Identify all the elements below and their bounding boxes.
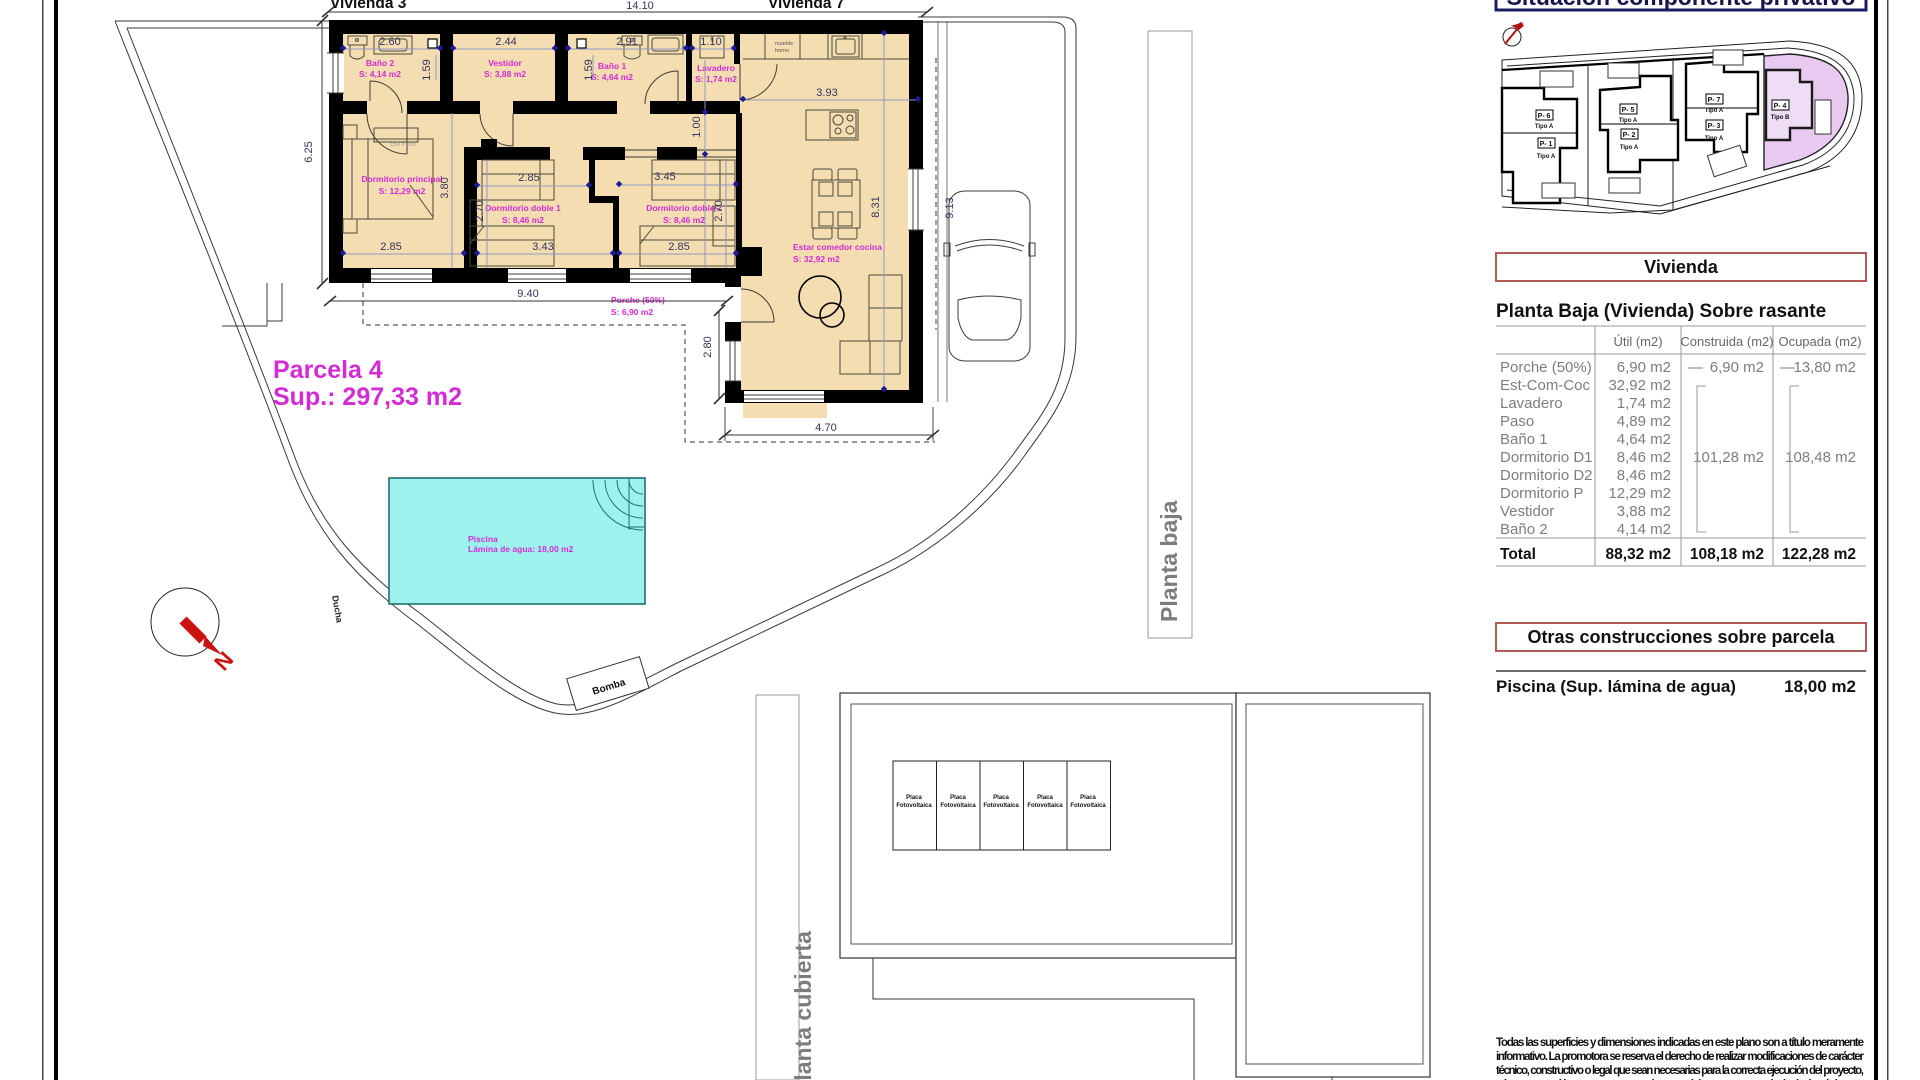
svg-text:32,92 m2: 32,92 m2 <box>1608 377 1671 394</box>
svg-text:Fotovoltaica: Fotovoltaica <box>983 803 1019 809</box>
svg-text:6.25: 6.25 <box>303 141 315 162</box>
svg-text:2.44: 2.44 <box>495 36 516 48</box>
svg-text:P- 5: P- 5 <box>1622 107 1635 114</box>
svg-text:2.85: 2.85 <box>668 241 689 253</box>
svg-text:técnico, constructivo o legal: técnico, constructivo o legal que sean n… <box>1496 1065 1864 1077</box>
svg-text:6,90 m2: 6,90 m2 <box>1710 359 1764 376</box>
svg-text:Fotovoltaica: Fotovoltaica <box>1070 803 1106 809</box>
svg-text:Sup.: 297,33 m2: Sup.: 297,33 m2 <box>273 383 462 411</box>
svg-text:2.91: 2.91 <box>616 36 637 48</box>
svg-text:informativo. La promotora se r: informativo. La promotora se reserva el … <box>1496 1051 1865 1063</box>
svg-text:Piscina (Sup. lámina de agua): Piscina (Sup. lámina de agua) <box>1496 677 1736 696</box>
svg-text:Dormitorio principal: Dormitorio principal <box>361 174 442 184</box>
svg-text:12,29 m2: 12,29 m2 <box>1608 485 1671 502</box>
svg-text:108,18 m2: 108,18 m2 <box>1690 546 1764 563</box>
svg-text:S: 1,74 m2: S: 1,74 m2 <box>695 74 737 84</box>
svg-text:Baño 2: Baño 2 <box>1500 521 1548 538</box>
svg-text:Fotovoltaica: Fotovoltaica <box>896 803 932 809</box>
svg-text:1,74 m2: 1,74 m2 <box>1617 395 1671 412</box>
svg-text:Tipo B: Tipo B <box>1771 115 1790 121</box>
svg-text:4.70: 4.70 <box>815 422 836 434</box>
svg-text:Fotovoltaica: Fotovoltaica <box>940 803 976 809</box>
svg-text:6,90 m2: 6,90 m2 <box>1617 359 1671 376</box>
svg-text:P- 2: P- 2 <box>1623 132 1636 139</box>
svg-text:Vivienda 7: Vivienda 7 <box>768 0 844 12</box>
svg-text:S: 32,92 m2: S: 32,92 m2 <box>793 254 840 264</box>
svg-text:Tipo A: Tipo A <box>1535 124 1554 130</box>
svg-text:8,46 m2: 8,46 m2 <box>1617 467 1671 484</box>
svg-text:Útil (m2): Útil (m2) <box>1613 334 1662 349</box>
svg-text:2.70: 2.70 <box>713 200 725 221</box>
svg-text:88,32 m2: 88,32 m2 <box>1606 546 1672 563</box>
svg-text:Dormitorio P: Dormitorio P <box>1500 485 1583 502</box>
svg-text:Tipo A: Tipo A <box>1705 108 1724 114</box>
svg-text:P- 6: P- 6 <box>1538 113 1551 120</box>
svg-text:2.70: 2.70 <box>474 200 486 221</box>
svg-text:1.10: 1.10 <box>700 36 721 48</box>
svg-text:Porche (50%): Porche (50%) <box>1500 359 1592 376</box>
svg-text:Lámina de agua: 18,00 m2: Lámina de agua: 18,00 m2 <box>468 544 574 554</box>
svg-text:2.85: 2.85 <box>518 172 539 184</box>
svg-text:S: 8,46 m2: S: 8,46 m2 <box>663 215 705 225</box>
svg-text:Placa: Placa <box>1037 795 1053 801</box>
svg-text:3,88 m2: 3,88 m2 <box>1617 503 1671 520</box>
svg-text:150 x 200: 150 x 200 <box>390 142 417 148</box>
svg-text:3.43: 3.43 <box>532 241 553 253</box>
svg-text:8,46 m2: 8,46 m2 <box>1617 449 1671 466</box>
svg-text:1.59: 1.59 <box>583 59 595 80</box>
svg-text:Dormitorio doble 2: Dormitorio doble 2 <box>646 203 722 213</box>
svg-text:Vivienda: Vivienda <box>1644 257 1719 277</box>
svg-text:S: 8,46 m2: S: 8,46 m2 <box>502 215 544 225</box>
svg-text:122,28 m2: 122,28 m2 <box>1782 546 1856 563</box>
svg-text:—: — <box>1688 359 1703 376</box>
svg-text:Ocupada (m2): Ocupada (m2) <box>1778 334 1861 349</box>
svg-text:Placa: Placa <box>993 795 1009 801</box>
svg-text:101,28 m2: 101,28 m2 <box>1693 449 1764 466</box>
svg-text:P- 1: P- 1 <box>1540 141 1553 148</box>
svg-text:Dormitorio doble 1: Dormitorio doble 1 <box>485 203 561 213</box>
svg-text:Planta cubierta: Planta cubierta <box>790 931 816 1080</box>
svg-text:108,48 m2: 108,48 m2 <box>1785 449 1856 466</box>
svg-text:14.10: 14.10 <box>626 0 654 12</box>
svg-text:Baño 2: Baño 2 <box>366 58 395 68</box>
svg-text:Vestidor: Vestidor <box>1500 503 1554 520</box>
svg-text:Planta Baja (Vivienda) Sobre r: Planta Baja (Vivienda) Sobre rasante <box>1496 301 1826 322</box>
svg-text:P- 7: P- 7 <box>1708 97 1721 104</box>
svg-text:S: 6,90 m2: S: 6,90 m2 <box>611 307 653 317</box>
svg-text:Estar comedor cocina: Estar comedor cocina <box>793 242 882 252</box>
svg-text:1.59: 1.59 <box>421 59 433 80</box>
svg-text:P- 4: P- 4 <box>1774 103 1787 110</box>
svg-text:9.13: 9.13 <box>944 197 956 218</box>
svg-text:Parcela 4: Parcela 4 <box>273 356 383 384</box>
svg-text:4,89 m2: 4,89 m2 <box>1617 413 1671 430</box>
svg-text:18,00 m2: 18,00 m2 <box>1784 677 1856 696</box>
svg-text:Otras construcciones sobre par: Otras construcciones sobre parcela <box>1527 627 1835 647</box>
svg-text:S: 12,29 m2: S: 12,29 m2 <box>379 186 426 196</box>
svg-text:mueble: mueble <box>775 41 793 47</box>
svg-text:Vestidor: Vestidor <box>488 58 522 68</box>
svg-text:Todas las superficies y dimens: Todas las superficies y dimensiones indi… <box>1496 1037 1864 1049</box>
svg-text:Porche (50%): Porche (50%) <box>611 295 665 305</box>
svg-text:4,14 m2: 4,14 m2 <box>1617 521 1671 538</box>
svg-text:S: 3,88 m2: S: 3,88 m2 <box>484 69 526 79</box>
svg-text:S: 4,14 m2: S: 4,14 m2 <box>359 69 401 79</box>
svg-text:Baño 1: Baño 1 <box>1500 431 1548 448</box>
svg-text:Paso: Paso <box>1500 413 1534 430</box>
svg-text:Placa: Placa <box>906 795 922 801</box>
svg-text:Tipo A: Tipo A <box>1620 145 1639 151</box>
svg-text:2.60: 2.60 <box>379 36 400 48</box>
svg-text:Vivienda 3: Vivienda 3 <box>330 0 407 12</box>
svg-text:4,64 m2: 4,64 m2 <box>1617 431 1671 448</box>
svg-text:13,80 m2: 13,80 m2 <box>1793 359 1856 376</box>
svg-text:9.40: 9.40 <box>517 288 538 300</box>
svg-text:Est-Com-Coc: Est-Com-Coc <box>1500 377 1591 394</box>
svg-text:Placa: Placa <box>1080 795 1096 801</box>
svg-text:2.85: 2.85 <box>380 241 401 253</box>
svg-text:3.45: 3.45 <box>654 171 675 183</box>
svg-text:8.31: 8.31 <box>870 196 882 217</box>
svg-text:P- 3: P- 3 <box>1708 123 1721 130</box>
svg-text:Dormitorio D1: Dormitorio D1 <box>1500 449 1593 466</box>
svg-text:Planta baja: Planta baja <box>1156 500 1182 622</box>
svg-text:Piscina: Piscina <box>468 534 498 544</box>
svg-text:Construida (m2): Construida (m2) <box>1680 334 1773 349</box>
svg-text:Lavadero: Lavadero <box>1500 395 1563 412</box>
svg-text:2.80: 2.80 <box>702 336 714 357</box>
svg-text:horno: horno <box>775 48 789 54</box>
svg-text:Situación componente privativo: Situación componente privativo <box>1507 0 1856 10</box>
svg-text:Fotovoltaica: Fotovoltaica <box>1027 803 1063 809</box>
svg-text:Dormitorio D2: Dormitorio D2 <box>1500 467 1593 484</box>
svg-text:Placa: Placa <box>950 795 966 801</box>
svg-text:Tipo A: Tipo A <box>1619 118 1638 124</box>
svg-text:3.93: 3.93 <box>816 87 837 99</box>
svg-text:1.00: 1.00 <box>691 116 703 137</box>
svg-text:Lavadero: Lavadero <box>697 63 735 73</box>
svg-text:Baño 1: Baño 1 <box>598 61 627 71</box>
svg-text:Tipo A: Tipo A <box>1705 136 1724 142</box>
svg-text:3.80: 3.80 <box>439 177 451 198</box>
svg-text:S: 4,64 m2: S: 4,64 m2 <box>591 72 633 82</box>
svg-text:Tipo A: Tipo A <box>1537 154 1556 160</box>
svg-text:Total: Total <box>1500 546 1536 563</box>
